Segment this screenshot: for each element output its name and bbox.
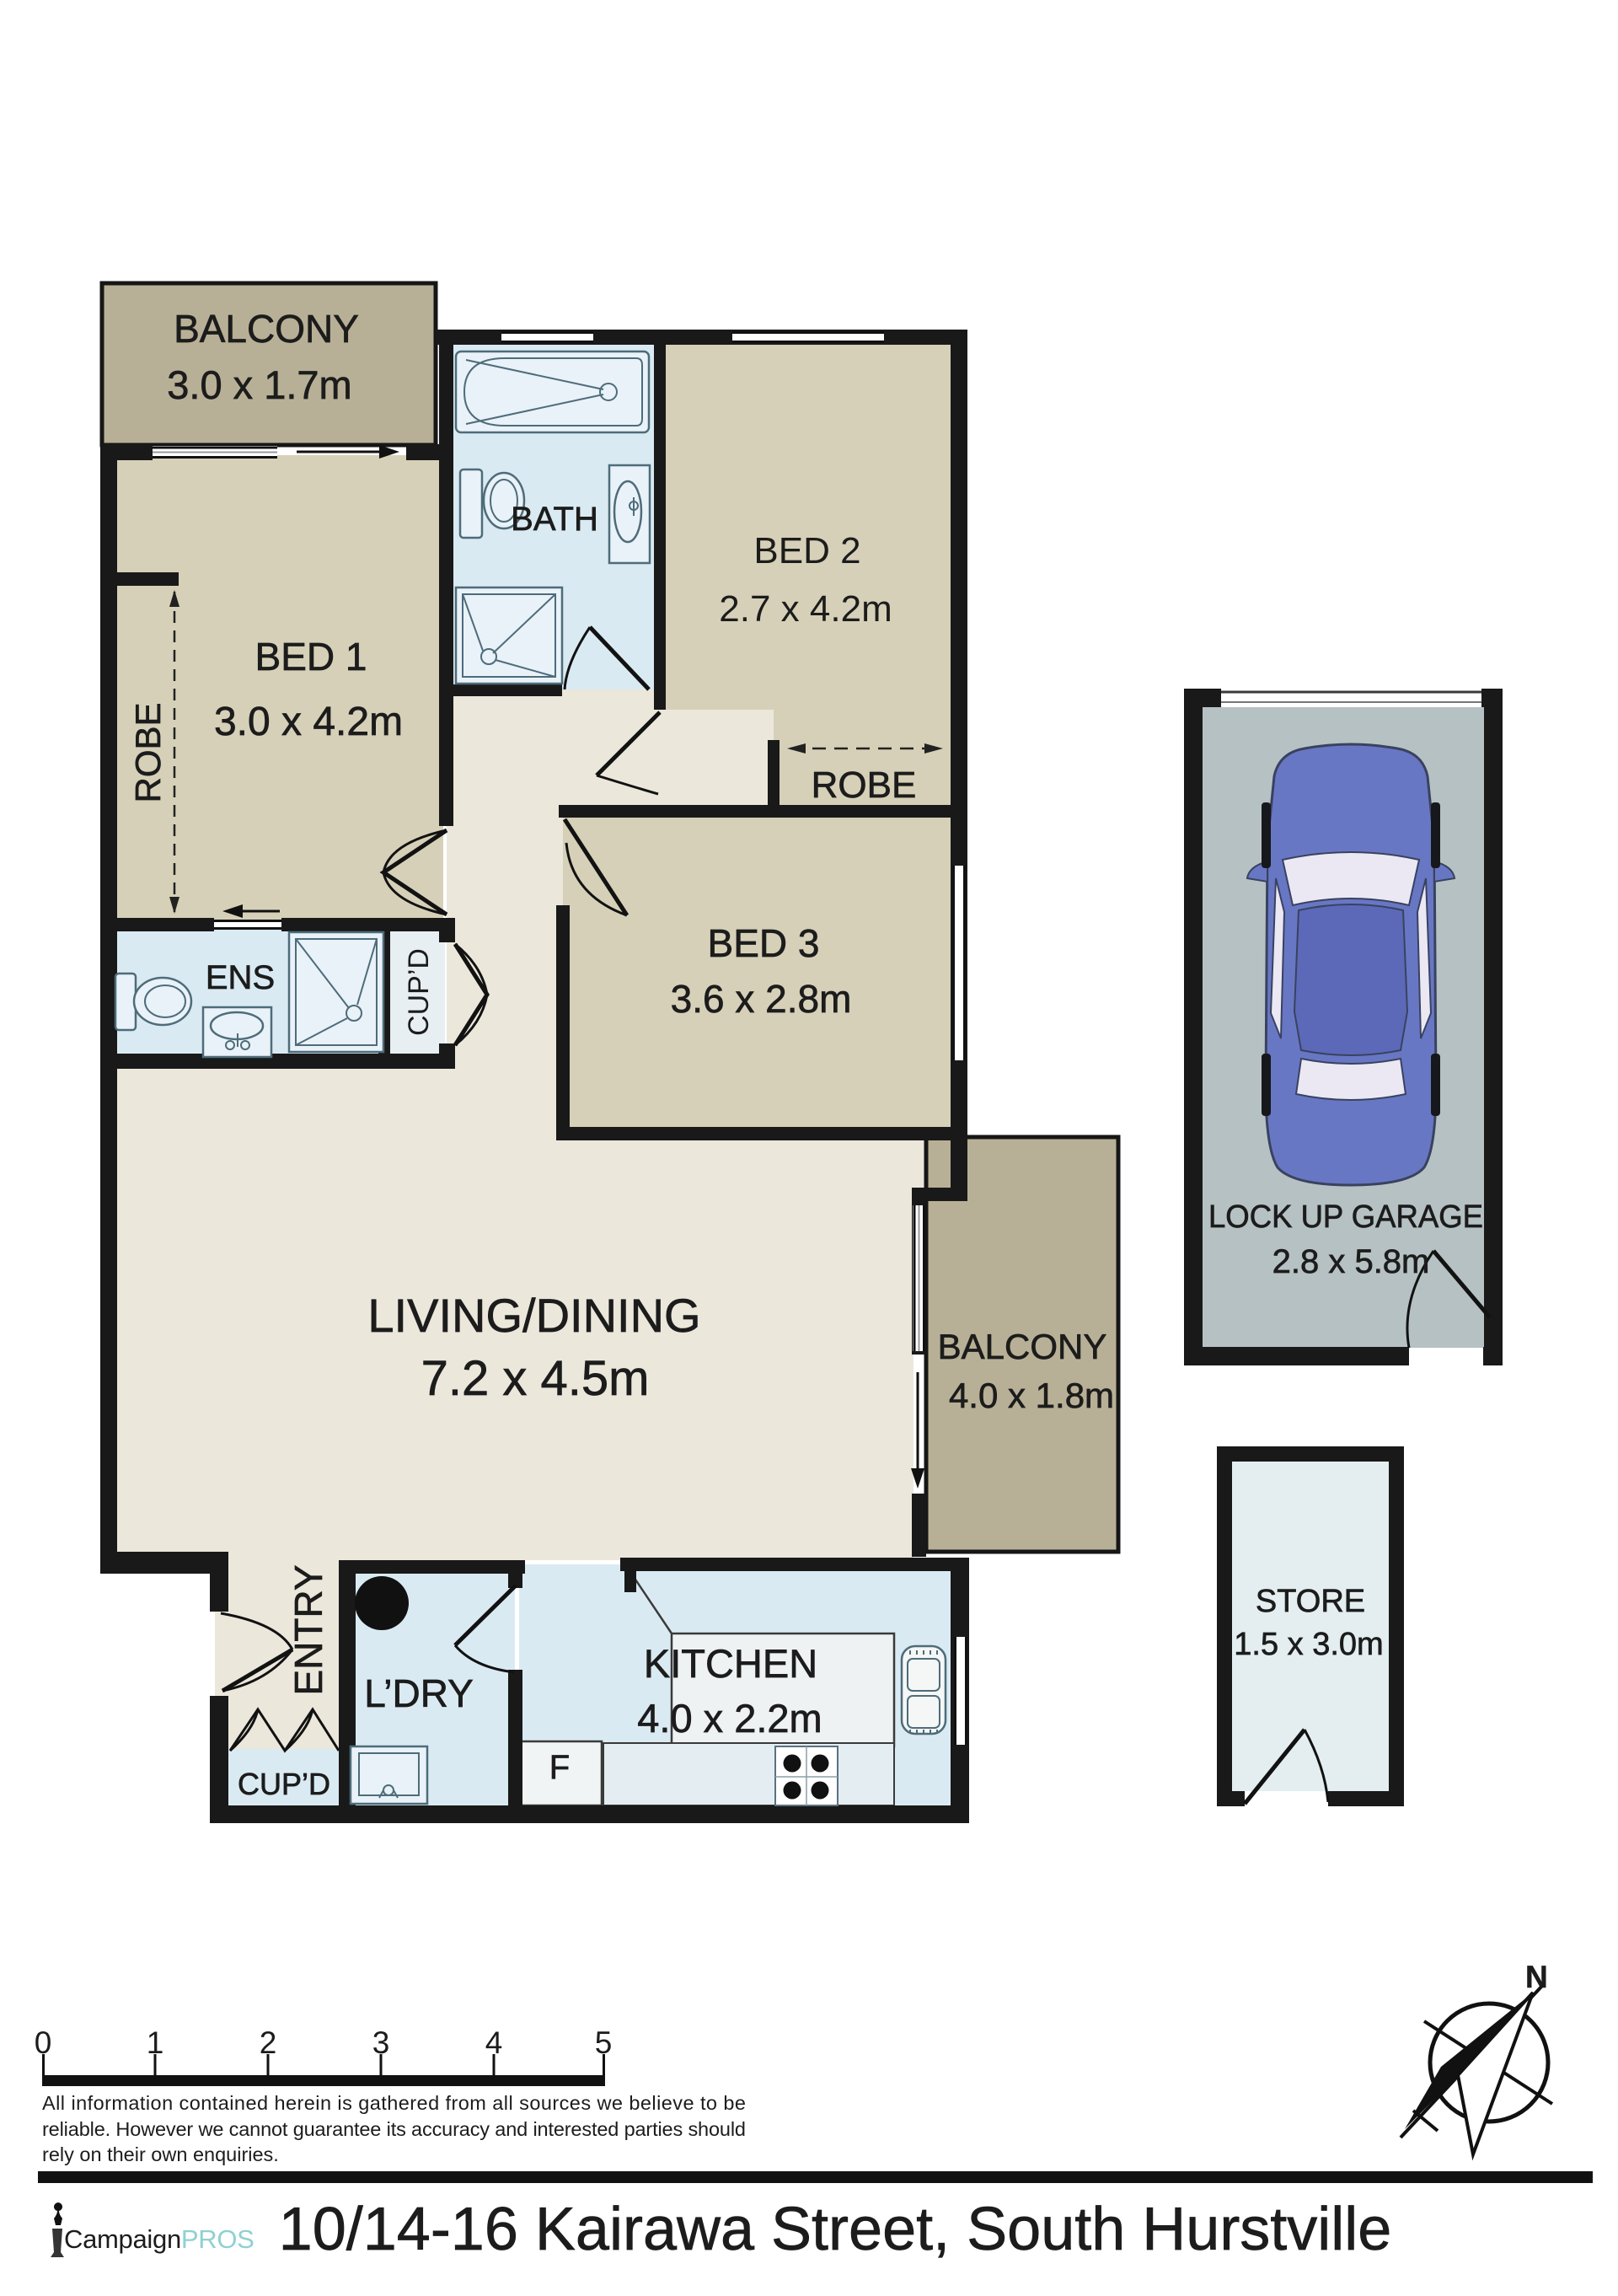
svg-text:2: 2 (260, 2025, 277, 2060)
svg-text:4.0 x 1.8m: 4.0 x 1.8m (949, 1376, 1114, 1415)
svg-text:2.8 x 5.8m: 2.8 x 5.8m (1272, 1243, 1430, 1280)
svg-text:reliable. However we cannot gu: reliable. However we cannot guarantee it… (42, 2118, 746, 2140)
svg-text:7.2 x 4.5m: 7.2 x 4.5m (421, 1351, 650, 1406)
svg-text:BED 3: BED 3 (708, 921, 820, 965)
svg-text:CUP’D: CUP’D (403, 948, 435, 1036)
svg-text:2.7 x 4.2m: 2.7 x 4.2m (719, 588, 892, 630)
svg-text:LIVING/DINING: LIVING/DINING (367, 1289, 700, 1342)
svg-text:ROBE: ROBE (812, 764, 917, 806)
svg-text:rely on their own enquiries.: rely on their own enquiries. (42, 2143, 279, 2165)
svg-text:BED 2: BED 2 (753, 530, 860, 571)
svg-text:3: 3 (372, 2025, 390, 2060)
svg-text:L’DRY: L’DRY (364, 1671, 474, 1715)
svg-text:BED 1: BED 1 (255, 635, 367, 679)
svg-text:BALCONY: BALCONY (174, 307, 359, 351)
svg-text:ROBE: ROBE (128, 702, 168, 802)
svg-text:CUP’D: CUP’D (238, 1767, 330, 1801)
svg-text:N: N (1525, 1960, 1548, 1994)
svg-text:3.0 x 4.2m: 3.0 x 4.2m (214, 700, 403, 744)
svg-text:F: F (549, 1749, 570, 1786)
svg-text:All information contained here: All information contained herein is gath… (42, 2092, 746, 2114)
svg-text:ENS: ENS (206, 959, 275, 996)
svg-text:4.0 x 2.2m: 4.0 x 2.2m (637, 1696, 822, 1741)
svg-text:1: 1 (147, 2025, 164, 2060)
svg-text:CampaignPROS: CampaignPROS (64, 2224, 254, 2254)
svg-text:10/14-16 Kairawa Street, South: 10/14-16 Kairawa Street, South Hurstvill… (279, 2196, 1392, 2263)
svg-text:STORE: STORE (1256, 1584, 1365, 1619)
svg-text:3.6 x 2.8m: 3.6 x 2.8m (671, 977, 852, 1021)
svg-text:ENTRY: ENTRY (287, 1564, 330, 1695)
svg-text:1.5 x 3.0m: 1.5 x 3.0m (1234, 1627, 1383, 1662)
svg-text:KITCHEN: KITCHEN (644, 1641, 817, 1686)
svg-text:BATH: BATH (511, 501, 598, 538)
svg-text:4: 4 (485, 2025, 503, 2060)
svg-text:LOCK UP GARAGE: LOCK UP GARAGE (1208, 1199, 1483, 1235)
svg-text:3.0 x 1.7m: 3.0 x 1.7m (167, 362, 351, 407)
svg-text:0: 0 (35, 2025, 52, 2060)
svg-text:BALCONY: BALCONY (938, 1327, 1107, 1366)
svg-text:5: 5 (595, 2025, 613, 2060)
